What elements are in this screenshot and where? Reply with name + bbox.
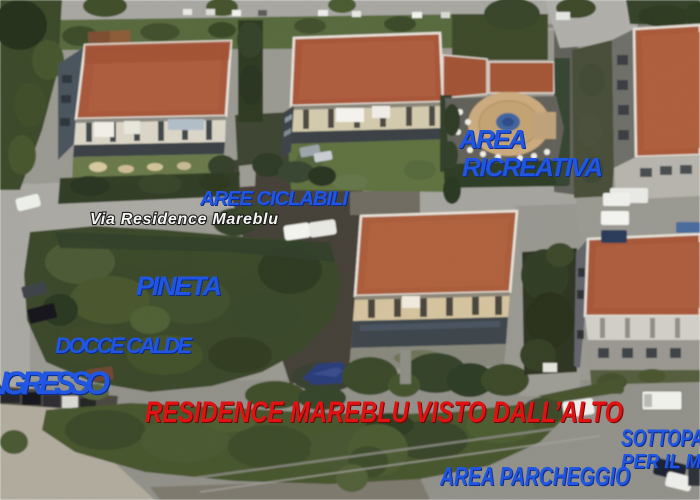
svg-text:AREE CICLABILI: AREE CICLABILI — [199, 188, 348, 210]
svg-text:Via Residence Mareblu: Via Residence Mareblu — [90, 211, 278, 228]
svg-text:DOCCE CALDE: DOCCE CALDE — [55, 333, 193, 358]
svg-text:PER IL M: PER IL M — [621, 451, 700, 473]
svg-text:SOTTOPAS: SOTTOPAS — [621, 425, 700, 452]
svg-text:RICREATIVA: RICREATIVA — [462, 152, 603, 182]
svg-text:INGRESSO: INGRESSO — [0, 365, 110, 401]
svg-text:RESIDENCE MAREBLU VISTO DALL’A: RESIDENCE MAREBLU VISTO DALL’ALTO — [145, 396, 623, 429]
svg-text:PINETA: PINETA — [136, 271, 222, 301]
svg-text:AREA PARCHEGGIO: AREA PARCHEGGIO — [439, 461, 630, 491]
svg-text:AREA: AREA — [458, 124, 527, 154]
